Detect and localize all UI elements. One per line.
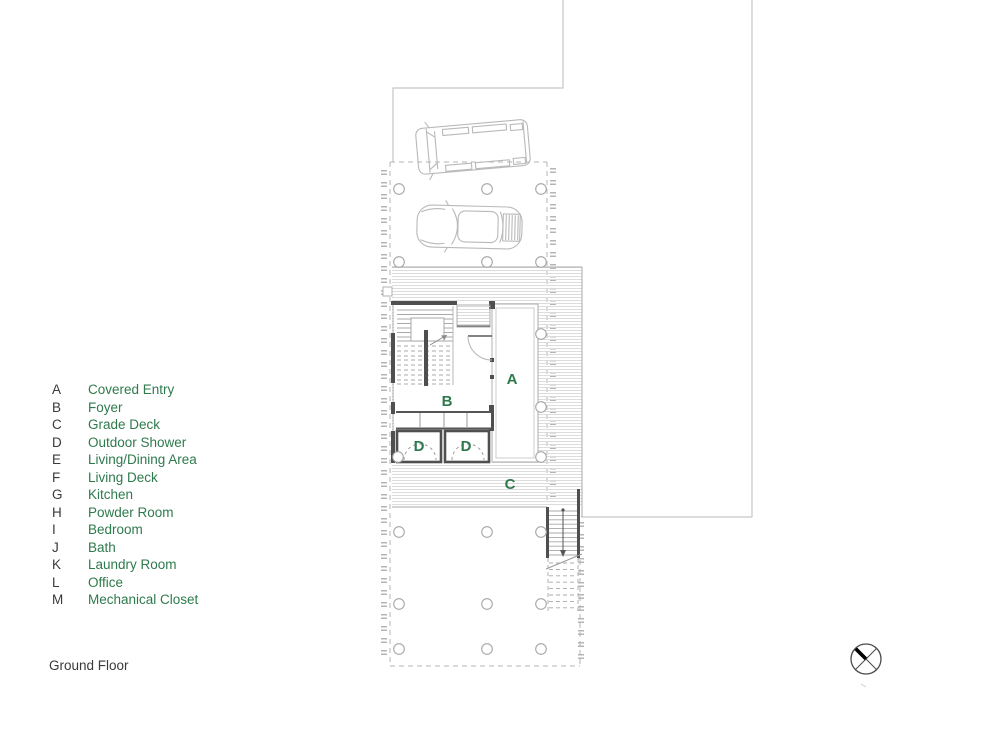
deck-step: [383, 287, 392, 296]
stair-down-arrow: [560, 550, 566, 557]
legend-row: KLaundry Room: [52, 556, 198, 574]
legend-letter: F: [52, 469, 88, 487]
floor-plan-drawing: A B C D D: [0, 0, 1000, 750]
legend-label: Kitchen: [88, 486, 133, 504]
plan-label-shower-left: D: [414, 438, 425, 455]
van-drawing: [415, 113, 532, 181]
legend-row: DOutdoor Shower: [52, 434, 198, 452]
legend-row: JBath: [52, 539, 198, 557]
stair-stringer-wall: [424, 330, 428, 386]
legend-letter: G: [52, 486, 88, 504]
bench-cubbies: [396, 411, 491, 429]
plan-label-grade-deck: C: [505, 476, 516, 493]
legend-label: Living Deck: [88, 469, 158, 487]
plan-label-covered-entry: A: [507, 371, 518, 388]
legend-letter: K: [52, 556, 88, 574]
legend-label: Powder Room: [88, 504, 174, 522]
legend-letter: M: [52, 591, 88, 609]
legend-label: Bedroom: [88, 521, 143, 539]
legend-label: Office: [88, 574, 123, 592]
legend-label: Foyer: [88, 399, 123, 417]
legend-letter: J: [52, 539, 88, 557]
legend-letter: L: [52, 574, 88, 592]
legend-row: LOffice: [52, 574, 198, 592]
exterior-stair: [546, 489, 582, 612]
legend-label: Covered Entry: [88, 381, 174, 399]
plan-label-foyer: B: [442, 393, 453, 410]
legend-letter: E: [52, 451, 88, 469]
legend-letter: D: [52, 434, 88, 452]
stair-break-line: [546, 554, 582, 569]
legend-row: MMechanical Closet: [52, 591, 198, 609]
legend-row: ELiving/Dining Area: [52, 451, 198, 469]
legend-row: GKitchen: [52, 486, 198, 504]
legend-label: Outdoor Shower: [88, 434, 186, 452]
legend-label: Grade Deck: [88, 416, 160, 434]
legend-label: Bath: [88, 539, 116, 557]
legend-row: CGrade Deck: [52, 416, 198, 434]
legend-label: Living/Dining Area: [88, 451, 197, 469]
legend-letter: A: [52, 381, 88, 399]
legend-label: Laundry Room: [88, 556, 177, 574]
sheet-title: Ground Floor: [49, 658, 129, 673]
north-arrow-icon: [851, 644, 881, 687]
plan-label-shower-right: D: [461, 438, 472, 455]
legend-letter: I: [52, 521, 88, 539]
legend-row: HPowder Room: [52, 504, 198, 522]
legend-row: ACovered Entry: [52, 381, 198, 399]
legend-letter: C: [52, 416, 88, 434]
legend-letter: B: [52, 399, 88, 417]
car-drawing: [416, 200, 522, 255]
room-legend: ACovered Entry BFoyer CGrade Deck DOutdo…: [52, 381, 198, 609]
floor-plan-sheet: A B C D D ACovered Entry BFoyer CGrade D…: [0, 0, 1000, 750]
legend-row: IBedroom: [52, 521, 198, 539]
entry-closet: [457, 305, 490, 327]
legend-letter: H: [52, 504, 88, 522]
legend-row: BFoyer: [52, 399, 198, 417]
legend-row: FLiving Deck: [52, 469, 198, 487]
legend-label: Mechanical Closet: [88, 591, 198, 609]
